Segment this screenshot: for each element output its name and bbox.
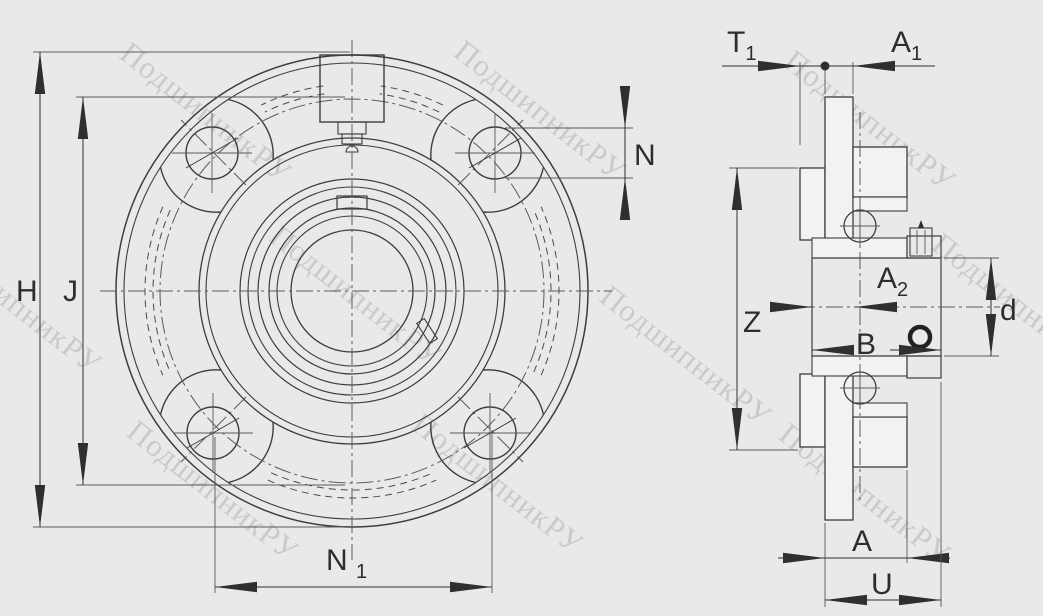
dim-label-J: J bbox=[63, 275, 78, 308]
drawing-canvas: ПодшипникРУ ПодшипникРУ ПодшипникРУ Подш… bbox=[0, 0, 1043, 616]
watermark-text: ПодшипникРУ bbox=[926, 226, 1043, 381]
set-screw-hole bbox=[910, 327, 930, 347]
watermark-text: ПодшипникРУ bbox=[448, 33, 633, 188]
watermark-text: ПодшипникРУ bbox=[406, 406, 591, 561]
technical-drawing-page: ПодшипникРУ ПодшипникРУ ПодшипникРУ Подш… bbox=[0, 0, 1043, 616]
flange-top bbox=[825, 97, 853, 240]
dim-label-H: H bbox=[16, 275, 38, 308]
dim-label-A: A bbox=[852, 525, 872, 558]
dim-label-N1-main: N bbox=[326, 544, 348, 577]
dim-label-N1: 1 bbox=[356, 561, 367, 583]
dimension-A2: A2 bbox=[770, 262, 908, 312]
bolt-hole bbox=[455, 113, 535, 193]
pilot-bottom bbox=[800, 374, 825, 447]
collar-bottom bbox=[907, 356, 941, 378]
dim-label-N: N bbox=[634, 139, 656, 172]
dim-label-d: d bbox=[1000, 294, 1017, 327]
flange-bottom bbox=[825, 374, 853, 520]
dim-label-B: B bbox=[856, 328, 876, 361]
watermark-text: ПодшипникРУ bbox=[114, 35, 299, 190]
pilot-top bbox=[800, 168, 825, 240]
watermarks: ПодшипникРУ ПодшипникРУ ПодшипникРУ Подш… bbox=[0, 33, 1043, 571]
dim-label-T1: T1 bbox=[727, 26, 756, 65]
dim-label-U: U bbox=[871, 568, 893, 601]
watermark-text: ПодшипникРУ bbox=[594, 278, 779, 433]
dim-label-A1: A1 bbox=[891, 26, 922, 65]
dim-label-Z: Z bbox=[743, 306, 761, 339]
dim-label-A2: A2 bbox=[877, 262, 908, 301]
barrel-bottom bbox=[853, 417, 907, 467]
barrel-top bbox=[853, 147, 907, 197]
